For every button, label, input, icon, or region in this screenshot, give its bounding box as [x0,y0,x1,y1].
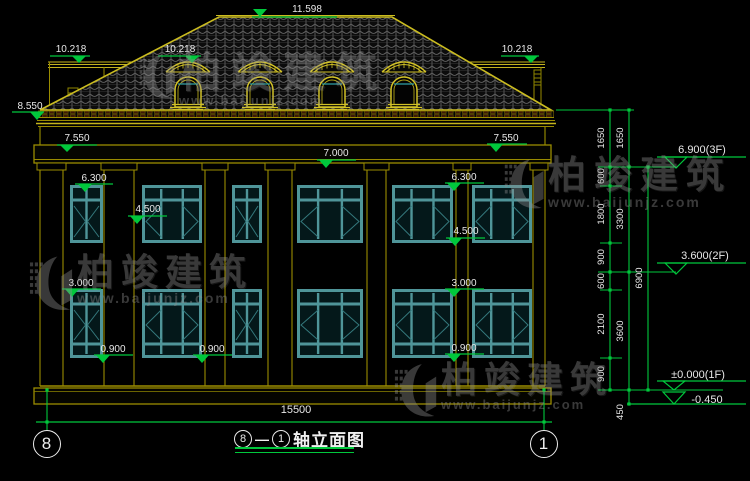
window-frame [474,187,531,242]
spot-elevation-label: 10.218 [56,44,87,55]
spot-elevation-label: 3.000 [68,278,93,289]
spot-elevation-label: 7.000 [323,148,348,159]
title-axis-chip-8: 8 [234,430,252,448]
dimension-node [627,165,630,168]
dimension-node [542,420,545,423]
axis-bubble-8: 8 [33,430,61,458]
window-frame [299,291,362,357]
chain-dimension-label: 1650 [615,127,626,148]
spot-elevation-label: 7.550 [64,133,89,144]
spot-elevation-label: 10.218 [165,44,196,55]
chain-dimension-label: 6900 [634,267,645,288]
pilaster [40,163,63,386]
hip-roof [40,16,551,111]
pilaster-capital [453,163,471,170]
pilaster-capital [202,163,228,170]
floor-elevation-label: 6.900(3F) [678,144,726,156]
pilaster-capital [364,163,389,170]
pilaster-capital [37,163,66,170]
chain-dimension-label: 900 [596,366,607,382]
chain-dimension-label: 900 [596,249,607,265]
dimension-node [45,420,48,423]
dimension-node [608,270,611,273]
title-axis-chip-1: 1 [272,430,290,448]
spot-elevation-label: 3.000 [451,278,476,289]
cad-elevation-drawing: 11.59810.21810.21810.2188.5507.5507.5507… [0,0,750,481]
elevation-triangle [96,355,110,363]
dormer-arch-frame [319,77,345,107]
pilaster-capital [530,163,548,170]
dormer-arch-frame [391,77,417,107]
spot-elevation-label: 0.900 [451,343,476,354]
elevation-triangle [130,216,144,224]
dimension-node [608,388,611,391]
dormer-arch-frame [175,77,201,107]
axis-bubble-1: 1 [530,430,558,458]
chain-dimension-label: 1650 [596,127,607,148]
pilaster [268,163,292,386]
spot-elevation-label: 8.550 [17,101,42,112]
overall-dimension-label: 15500 [281,404,312,416]
dimension-node [627,270,630,273]
pilaster [533,163,545,386]
title-underline [235,447,354,449]
dimension-node [646,165,649,168]
spot-elevation-label: 0.900 [100,344,125,355]
window-frame [394,291,452,357]
spot-elevation-label: 7.550 [493,133,518,144]
spot-elevation-label: 6.300 [451,172,476,183]
pilaster-capital [265,163,295,170]
chain-dimension-label: 600 [596,273,607,289]
chain-dimension-label: 450 [615,404,626,420]
eave-cornice [36,111,556,145]
title-dash: — [255,431,269,447]
dimension-node [608,165,611,168]
floor-elevation-triangle [665,157,687,168]
spot-elevation-label: 10.218 [502,44,533,55]
floor-elevation-label: ±0.000(1F) [671,369,725,381]
elevation-triangle [319,160,333,168]
pilaster-capital [101,163,137,170]
window-frame [394,187,452,242]
dormer-arch-frame [247,77,273,107]
window-frame [144,291,201,357]
dimension-node [542,388,545,391]
floor-elevation-triangle [663,392,685,404]
dimension-node [627,388,630,391]
dimension-node [646,388,649,391]
dimension-node [45,388,48,391]
floor-elevation-triangle [663,381,685,390]
title-underline [235,452,354,454]
chain-dimension-label: 2100 [596,313,607,334]
spot-elevation-label: 4.500 [453,226,478,237]
window-frame [299,187,362,242]
spot-elevation-label: 0.900 [199,344,224,355]
spot-elevation-label: 4.500 [135,204,160,215]
chain-dimension-label: 3600 [615,320,626,341]
spot-elevation-label: 6.300 [81,173,106,184]
belt-course [34,145,551,163]
plinth-base [34,386,551,404]
chain-dimension-label: 3300 [615,208,626,229]
dimension-node [627,402,630,405]
chain-dimension-label: 600 [596,168,607,184]
floor-elevation-label: 3.600(2F) [681,250,729,262]
spot-elevation-label: 11.598 [292,4,322,15]
elevation-triangle [195,355,209,363]
pilaster [367,163,386,386]
elevation-geometry: 11.59810.21810.21810.2188.5507.5507.5507… [0,0,750,481]
chain-dimension-label: 1800 [596,203,607,224]
window-frame [474,291,531,357]
